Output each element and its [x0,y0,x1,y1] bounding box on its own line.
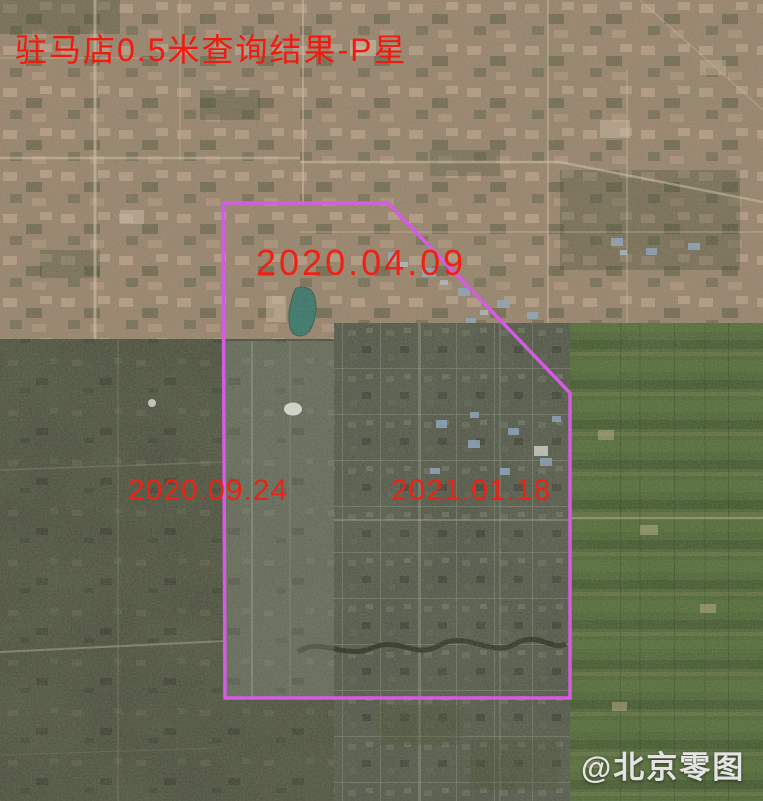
satellite-query-result-view: 驻马店0.5米查询结果-P星 2020.04.09 2020.09.24 202… [0,0,763,801]
tile-date-label-2020-04-09: 2020.04.09 [256,245,466,281]
tile-date-label-2021-01-18: 2021.01.18 [391,476,551,506]
page-title: 驻马店0.5米查询结果-P星 [15,34,408,66]
tile-date-label-2020-09-24: 2020.09.24 [128,476,288,506]
satellite-canvas [0,0,763,801]
watermark: @北京零图 [581,752,745,783]
noise-overlay [0,0,763,801]
